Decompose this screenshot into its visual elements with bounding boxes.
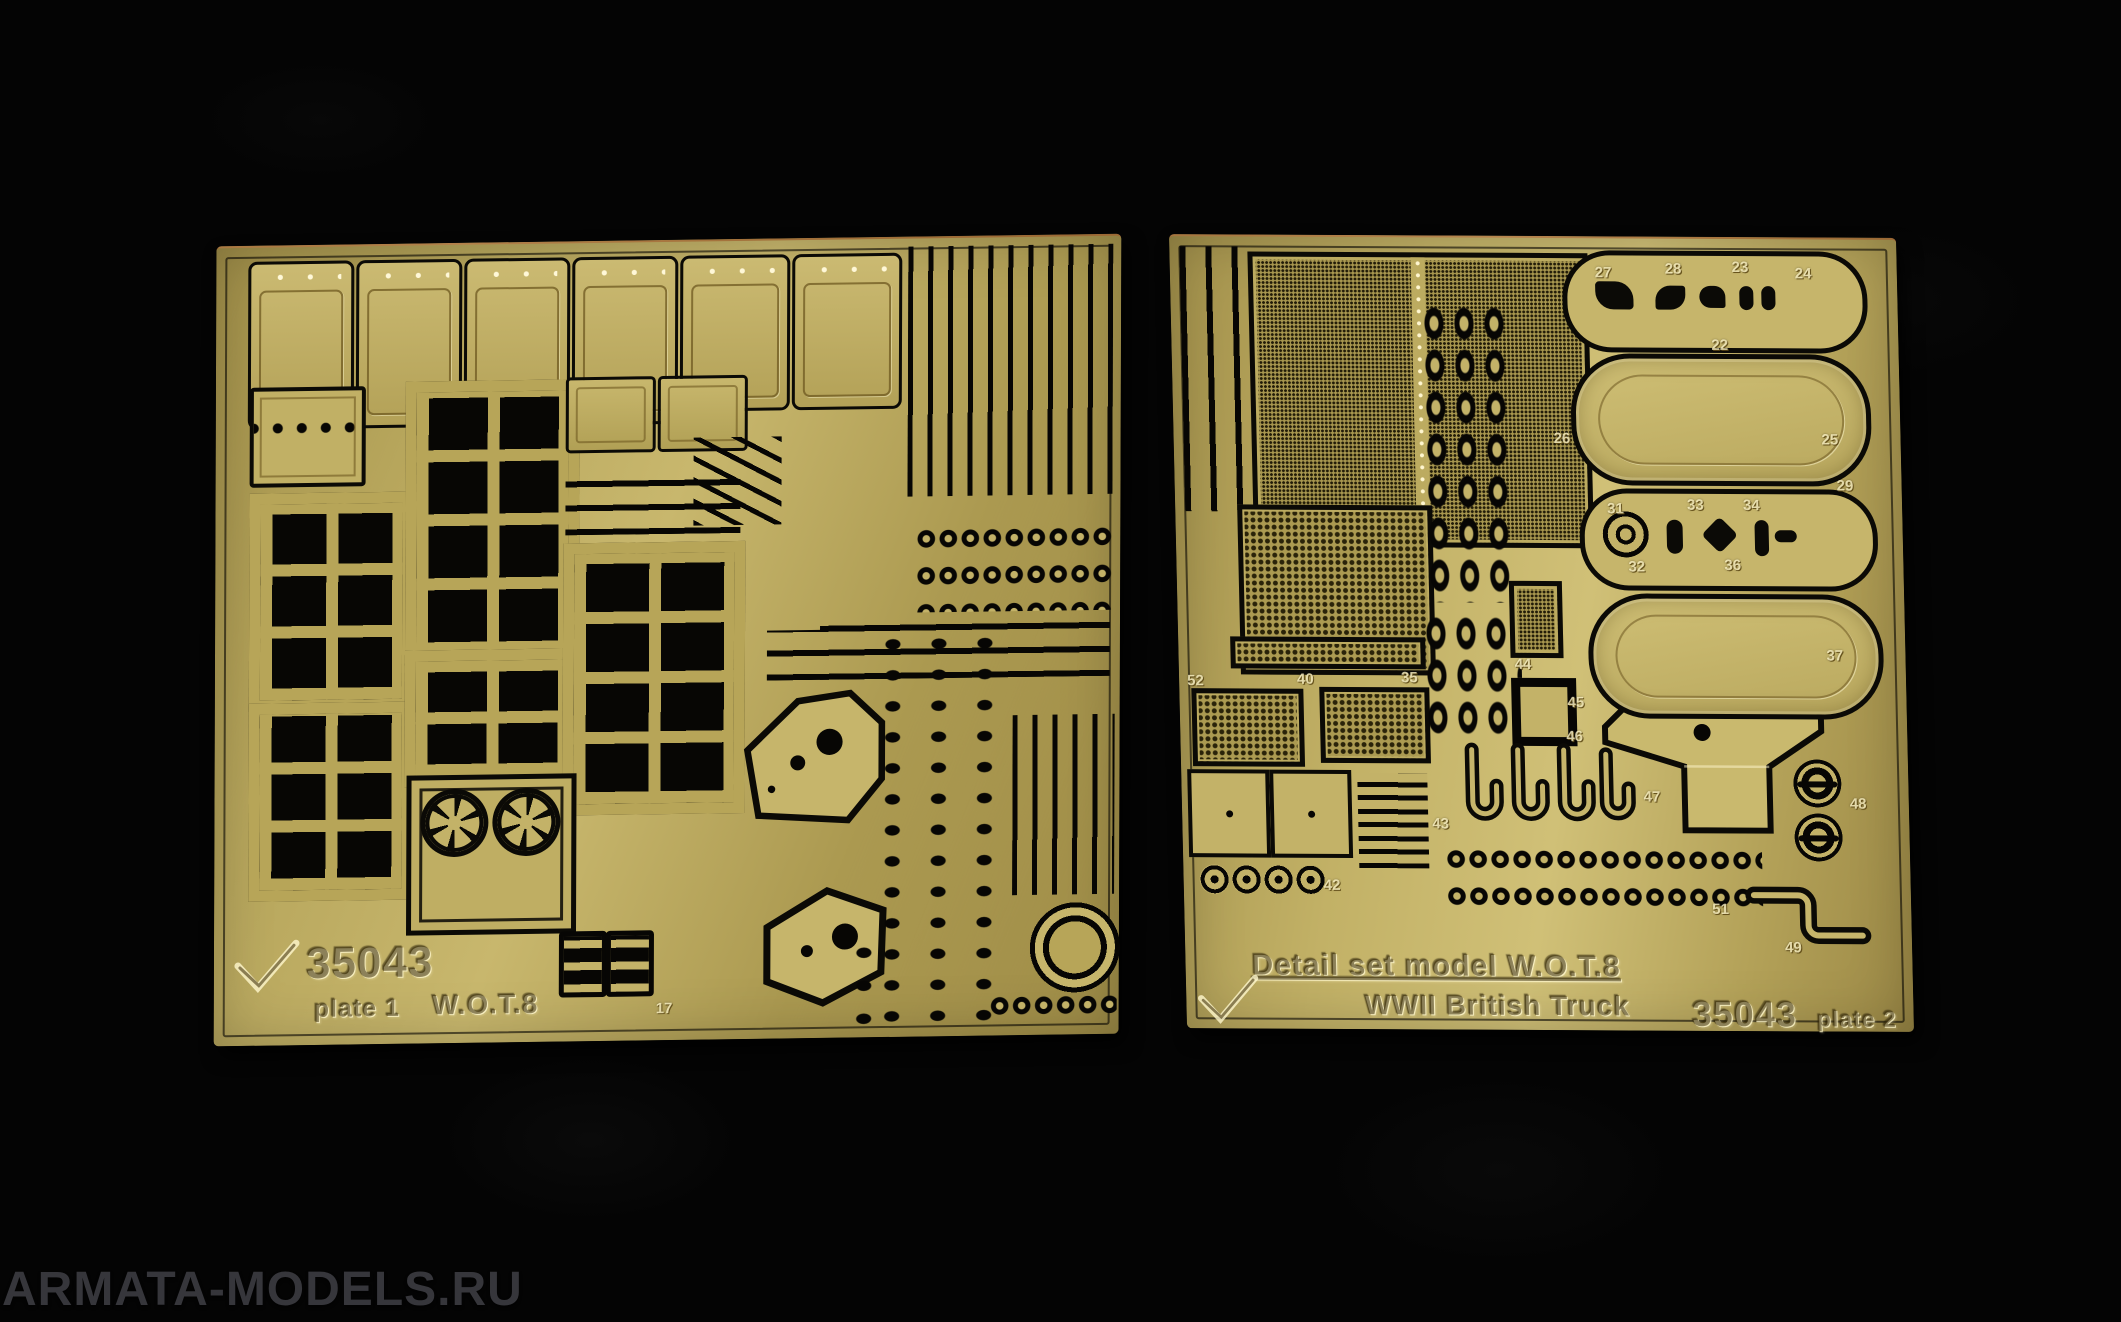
hatch-panel-part [566, 376, 656, 453]
part-number-label: 36 [1724, 557, 1741, 574]
part-number-label: 43 [1432, 815, 1449, 832]
part-number-label: 34 [1743, 497, 1760, 514]
strip-parts-group [907, 244, 1113, 497]
washer-part [1199, 864, 1230, 894]
small-part [1739, 286, 1754, 310]
step-part [606, 930, 654, 997]
small-part [1701, 517, 1738, 554]
window-frame-part [562, 541, 745, 816]
part-number-label: 24 [1795, 265, 1812, 282]
spoked-wheel [497, 793, 555, 852]
slotted-ring-part [1794, 813, 1843, 861]
ring-part [1602, 511, 1649, 557]
mesh-screen-part [1319, 687, 1431, 764]
part-number-label: 27 [1595, 264, 1612, 281]
ace-checkmark-icon [1194, 972, 1263, 1028]
plate-square-part [1187, 769, 1271, 857]
part-number-label: 42 [1324, 877, 1341, 894]
part-number-label: 40 [1297, 671, 1314, 688]
window-frame-part [249, 492, 414, 712]
etched-plate-1: 17 35043 plate 1 W.O.T.8 [214, 234, 1122, 1047]
small-bracket-parts [915, 518, 1113, 613]
pipe-part [1744, 879, 1876, 965]
strip-parts-group [1012, 714, 1115, 895]
part-number-label: 25 [1821, 431, 1838, 448]
part-number-label: 46 [1566, 728, 1583, 745]
photo-scene: 17 35043 plate 1 W.O.T.8 [0, 0, 2121, 1322]
door-panel [792, 253, 903, 411]
set-subtitle-text: WWII British Truck [1364, 989, 1630, 1022]
link-parts-column [1421, 612, 1524, 743]
part-number-label: 17 [656, 1000, 673, 1017]
channel-parts [1357, 773, 1429, 868]
part-number-label: 44 [1515, 656, 1532, 673]
model-name-text: W.O.T.8 [432, 988, 539, 1021]
cab-panel-part [739, 687, 889, 829]
watermark-text: ARMATA-MODELS.RU [2, 1262, 523, 1317]
part-number-label: 33 [1687, 497, 1704, 514]
eyelet-parts-rows [1445, 840, 1764, 909]
mesh-strip-part [1230, 636, 1426, 669]
link-parts-column [1419, 302, 1514, 603]
plate-square-part [1269, 770, 1353, 858]
clamp-parts-column [839, 936, 889, 1032]
window-frame-part [405, 648, 579, 787]
vent-grille-part [250, 386, 366, 488]
small-part [1754, 520, 1769, 556]
spoked-wheel [425, 794, 483, 853]
oval-panel-part [1570, 353, 1873, 487]
part-number-label: 22 [1711, 337, 1728, 354]
washer-part [1263, 865, 1294, 895]
window-frame-part [248, 702, 413, 902]
part-number-label: 49 [1785, 939, 1802, 956]
plate-code-text: 35043 [306, 937, 434, 989]
step-part [559, 931, 607, 998]
slotted-ring-part [1793, 759, 1842, 807]
part-number-label: 28 [1665, 261, 1682, 278]
part-number-label: 32 [1628, 558, 1645, 575]
small-part [1666, 520, 1683, 554]
mesh-screen-part [1191, 688, 1305, 767]
washer-part [1231, 864, 1262, 894]
ace-checkmark-icon [232, 937, 302, 998]
part-number-label: 29 [1836, 478, 1853, 495]
clamp-parts-column [869, 627, 1005, 1029]
wiper-arm-parts [693, 436, 781, 525]
part-number-label: 31 [1607, 500, 1624, 517]
etched-plate-2: 27 28 23 24 22 26 25 29 31 32 33 34 36 3… [1169, 234, 1914, 1032]
plate-code-text: 35043 [1691, 993, 1797, 1036]
plate-number-text: plate 2 [1816, 1005, 1896, 1032]
small-part [1655, 286, 1686, 310]
small-bracket-parts [989, 986, 1117, 1030]
washer-part [1295, 865, 1326, 895]
plate-number-text: plate 1 [314, 994, 400, 1024]
part-number-label: 52 [1187, 672, 1204, 689]
part-number-label: 47 [1644, 789, 1661, 806]
part-number-label: 26 [1553, 430, 1570, 447]
part-number-label: 23 [1731, 259, 1748, 276]
part-number-label: 48 [1850, 796, 1867, 813]
small-mesh-part [1509, 581, 1564, 658]
window-frame-part [405, 379, 580, 665]
spoked-wheels-part [406, 773, 577, 935]
part-number-label: 35 [1401, 669, 1418, 686]
small-part [1761, 286, 1776, 310]
small-part [1595, 281, 1634, 309]
small-part [1699, 286, 1725, 308]
strip-parts-group [1179, 246, 1245, 511]
set-title-text: Detail set model W.O.T.8 [1251, 948, 1621, 984]
part-number-label: 37 [1826, 647, 1843, 664]
part-number-label: 45 [1567, 694, 1584, 711]
part-number-label: 51 [1712, 901, 1729, 918]
small-part [1775, 530, 1797, 542]
